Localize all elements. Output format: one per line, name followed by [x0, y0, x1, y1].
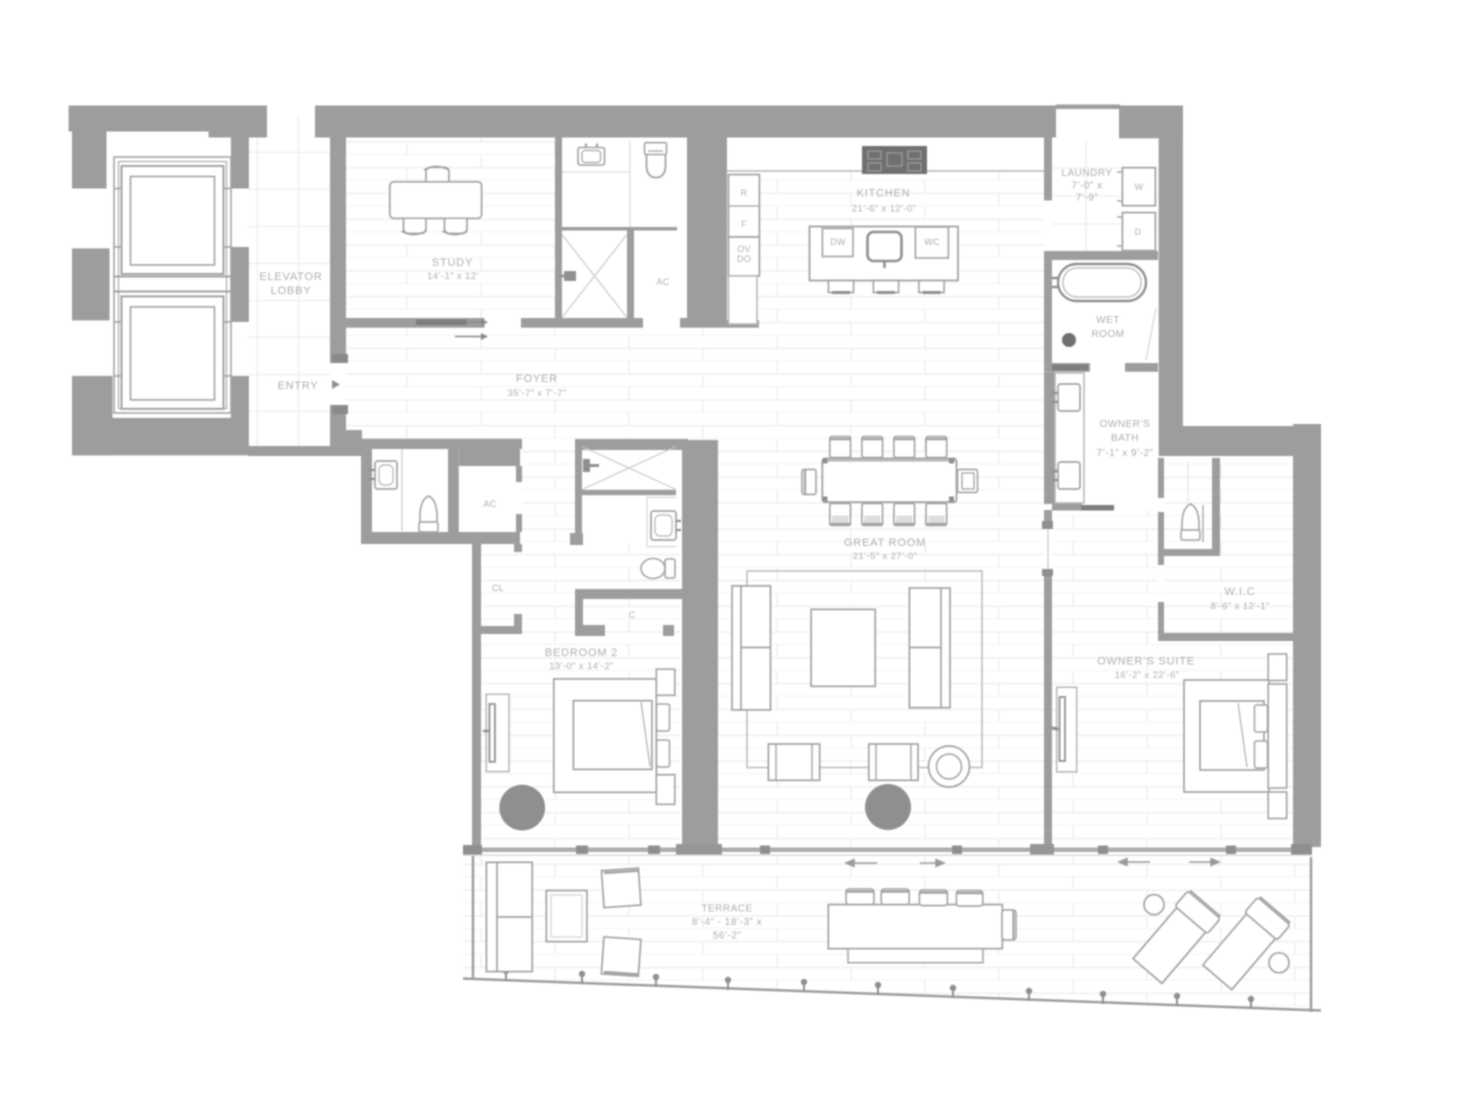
svg-text:7’-9”: 7’-9”	[1076, 193, 1099, 204]
svg-text:DO: DO	[737, 254, 751, 264]
svg-text:35’-7” x 7’-7”: 35’-7” x 7’-7”	[508, 388, 567, 399]
svg-text:8’-4” - 18’-3” x: 8’-4” - 18’-3” x	[692, 917, 762, 928]
svg-text:D: D	[1135, 227, 1142, 237]
svg-text:WET: WET	[1096, 315, 1120, 326]
svg-text:OWNER’S SUITE: OWNER’S SUITE	[1097, 656, 1195, 668]
svg-text:STUDY: STUDY	[432, 257, 473, 269]
svg-text:BEDROOM 2: BEDROOM 2	[545, 647, 618, 659]
svg-text:LAUNDRY: LAUNDRY	[1061, 168, 1112, 179]
svg-text:56’-2”: 56’-2”	[713, 931, 742, 942]
svg-text:ROOM: ROOM	[1091, 329, 1124, 340]
svg-text:16’-2” x 22’-6”: 16’-2” x 22’-6”	[1115, 670, 1180, 681]
svg-text:LOBBY: LOBBY	[271, 285, 312, 297]
svg-text:DW: DW	[830, 237, 846, 247]
svg-text:OV: OV	[737, 244, 751, 254]
svg-text:21’-6” x 12’-0”: 21’-6” x 12’-0”	[852, 204, 917, 215]
svg-text:7’-0” x: 7’-0” x	[1071, 181, 1102, 192]
svg-text:OWNER’S: OWNER’S	[1100, 419, 1151, 430]
svg-text:7’-1” x 9’-2”: 7’-1” x 9’-2”	[1096, 448, 1153, 459]
svg-text:FOYER: FOYER	[516, 373, 558, 385]
svg-text:KITCHEN: KITCHEN	[857, 188, 911, 200]
svg-text:GREAT ROOM: GREAT ROOM	[844, 537, 926, 549]
svg-text:R: R	[741, 188, 748, 198]
svg-text:ELEVATOR: ELEVATOR	[259, 271, 322, 283]
svg-text:W.I.C: W.I.C	[1225, 586, 1256, 598]
svg-text:8’-6” x 12’-1”: 8’-6” x 12’-1”	[1211, 601, 1270, 612]
svg-text:TERRACE: TERRACE	[701, 904, 752, 915]
svg-text:21’-5” x 27’-0”: 21’-5” x 27’-0”	[853, 551, 918, 562]
svg-text:WC: WC	[924, 237, 940, 247]
svg-text:14’-1” x 12’: 14’-1” x 12’	[427, 271, 479, 282]
svg-text:BATH: BATH	[1111, 433, 1139, 444]
svg-text:W: W	[1135, 182, 1144, 192]
svg-text:AC: AC	[656, 277, 669, 287]
svg-text:CL: CL	[492, 583, 504, 593]
svg-text:AC: AC	[483, 499, 496, 509]
svg-text:13’-0” x 14’-2”: 13’-0” x 14’-2”	[549, 661, 614, 672]
svg-text:F: F	[741, 219, 747, 229]
svg-text:C: C	[629, 610, 636, 620]
svg-text:ENTRY: ENTRY	[277, 380, 318, 392]
